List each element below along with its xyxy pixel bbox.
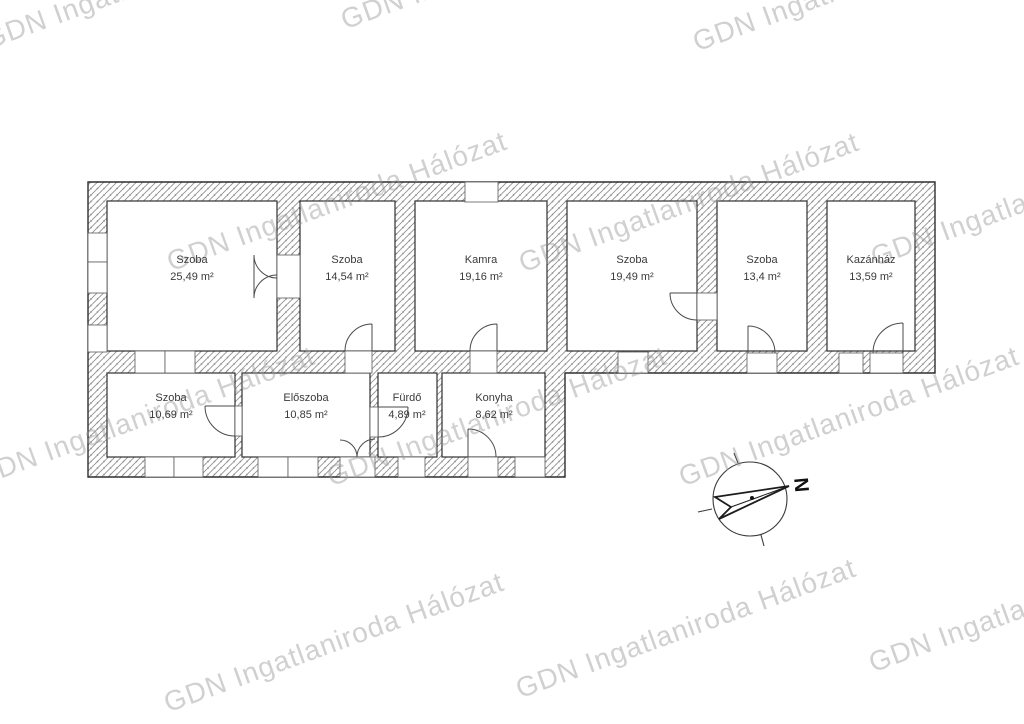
room-szoba-5	[717, 201, 807, 351]
room-szoba-2	[300, 201, 395, 351]
window-mid-1	[135, 351, 165, 373]
doorgap-furdo	[370, 407, 378, 437]
north-label: N	[789, 477, 812, 493]
doorgap-konyha-exterior	[468, 457, 498, 477]
window-mid-2	[165, 351, 195, 373]
doorgap-szoba5-exterior	[747, 353, 777, 373]
doorgap-kamra-konyha	[470, 351, 497, 373]
window-bottom-konyha	[515, 457, 545, 477]
room-interiors	[107, 201, 915, 457]
window-top-kamra	[465, 182, 498, 202]
room-szoba-4	[567, 201, 697, 351]
compass-center-dot	[750, 496, 754, 500]
doorgap-szoba1-szoba2	[277, 255, 300, 298]
room-kazanhaz	[827, 201, 915, 351]
doorgap-szoba2-eloszoba	[345, 351, 372, 373]
doorgap-szoba4-szoba5	[697, 293, 717, 320]
room-szoba-7	[107, 373, 235, 457]
window-left-3	[88, 325, 107, 352]
compass-rose: N	[698, 453, 812, 546]
window-bottom-1b	[174, 457, 203, 477]
window-bottom-furdo	[398, 457, 425, 477]
window-left-1	[88, 233, 107, 262]
room-szoba-1	[107, 201, 277, 351]
doorgap-szoba7	[235, 406, 242, 436]
window-bottom-2a	[258, 457, 288, 477]
window-south-szoba4	[618, 352, 648, 373]
doorgap-kazanhaz-exterior	[870, 353, 903, 373]
window-bottom-2b	[288, 457, 318, 477]
room-kamra	[415, 201, 547, 351]
window-left-2	[88, 262, 107, 293]
floorplan-canvas: N GDN Ingatlaniroda Hálózat GDN Ingatlan…	[0, 0, 1024, 724]
floorplan-drawing: N	[0, 0, 1024, 724]
window-bottom-1a	[145, 457, 174, 477]
doorgap-entrance	[340, 457, 375, 477]
window-kazanhaz-side	[839, 353, 863, 373]
north-arrow	[715, 486, 789, 519]
